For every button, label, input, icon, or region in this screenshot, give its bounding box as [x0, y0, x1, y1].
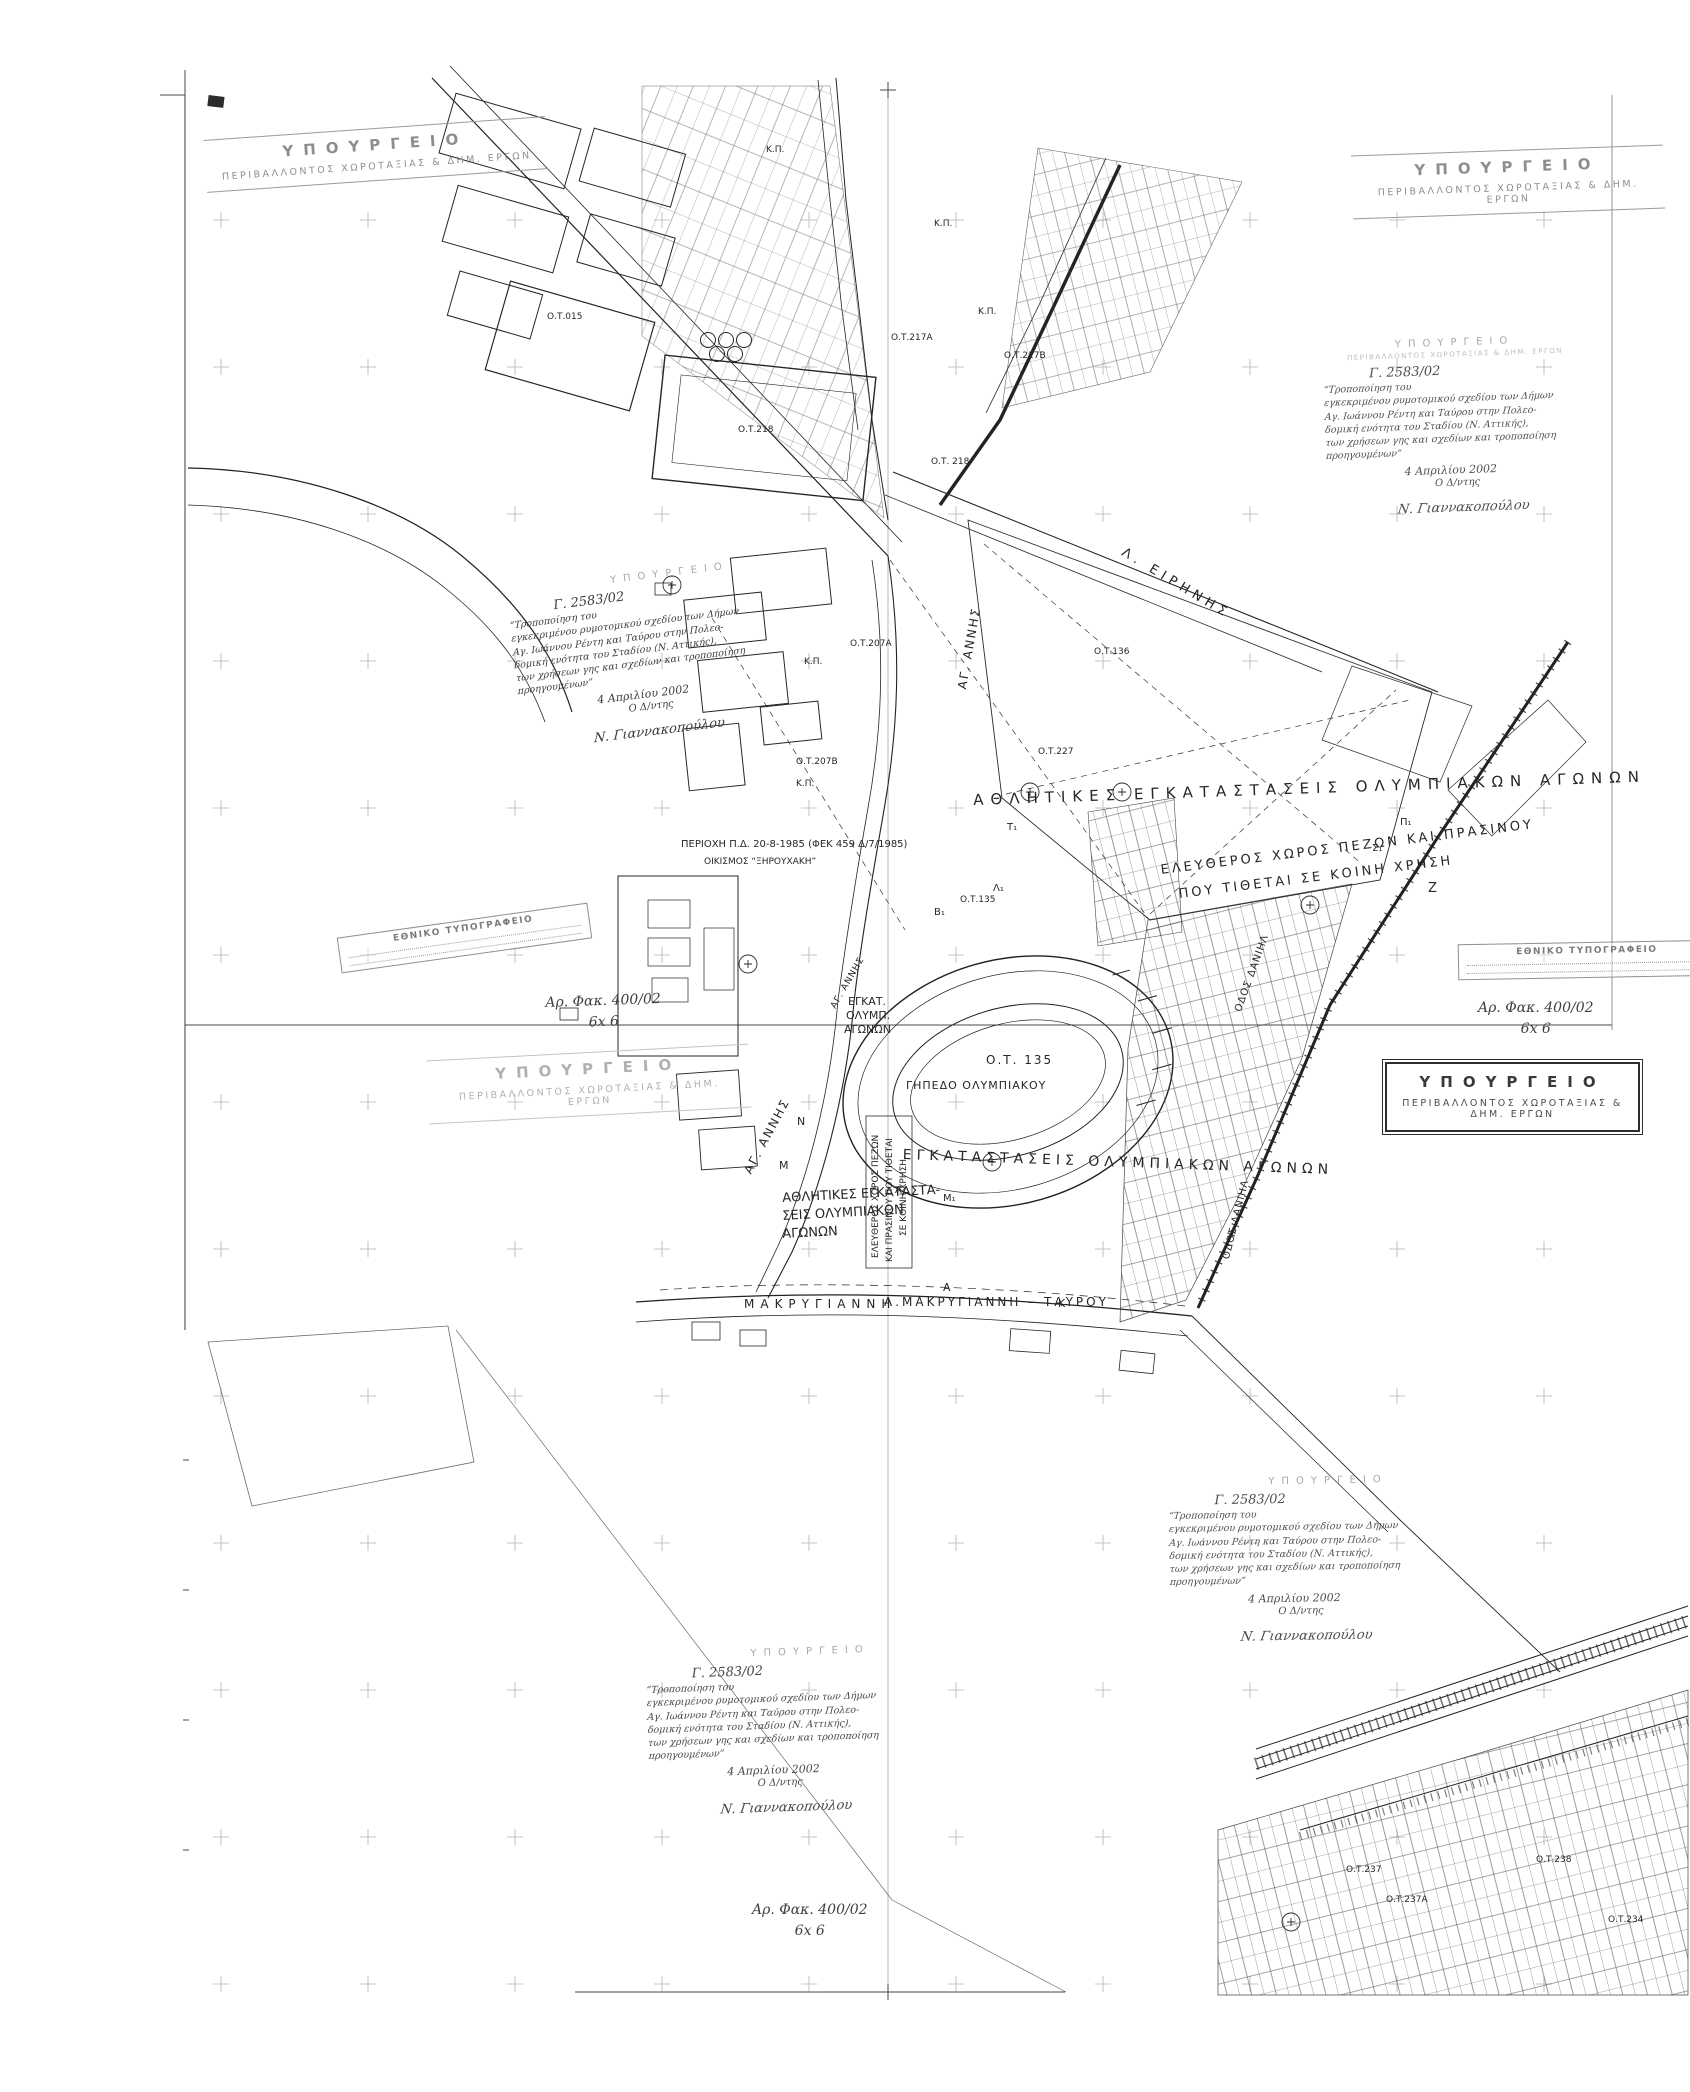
file-number: Αρ. Φακ. 400/02	[545, 989, 661, 1014]
map-label: ΣΕ ΚΟΙΝΗ ΧΡΗΣΗ	[900, 1159, 909, 1236]
illegible-line	[1467, 965, 1690, 974]
ministry-stamp-mid-right: ΥΠΟΥΡΓΕΙΟ ΠΕΡΙΒΑΛΛΟΝΤΟΣ ΧΩΡΟΤΑΞΙΑΣ & ΔΗΜ…	[1385, 1062, 1640, 1132]
map-label: Κ.Π.	[796, 780, 814, 789]
map-label: Ο.Τ.237	[1346, 1866, 1381, 1875]
map-label: ΑΓΩΝΩΝ	[844, 1024, 891, 1035]
approval-note-bottom-center: ΥΠΟΥΡΓΕΙΟ Γ. 2583/02 “Τροποποίηση του εγ…	[645, 1640, 981, 1819]
sheet-ref: 6x 6	[1478, 1019, 1594, 1040]
map-label: Ο.Τ.234	[1608, 1916, 1643, 1925]
map-label: Ο.Τ. 135	[986, 1054, 1053, 1066]
map-label: Λ.ΜΑΚΡΥΓΙΑΝΝΗ – ΤΑΥΡΟΥ	[884, 1296, 1109, 1308]
ministry-stamp-top-right: ΥΠΟΥΡΓΕΙΟ ΠΕΡΙΒΑΛΛΟΝΤΟΣ ΧΩΡΟΤΑΞΙΑΣ & ΔΗΜ…	[1351, 145, 1665, 220]
map-label: Σ₁	[1372, 844, 1382, 854]
map-label: ΕΛΕΥΘΕΡΟΣ ΧΩΡΟΣ ΠΕΖΩΝ	[872, 1135, 881, 1258]
approval-note-upper-right: ΥΠΟΥΡΓΕΙΟ ΠΕΡΙΒΑΛΛΟΝΤΟΣ ΧΩΡΟΤΑΞΙΑΣ & ΔΗΜ…	[1322, 333, 1593, 520]
map-label: ΟΛΥΜΠ.	[846, 1010, 890, 1021]
printing-office-name: ΕΘΝΙΚΟ ΤΥΠΟΓΡΑΦΕΙΟ	[1467, 944, 1690, 958]
map-label: Ο.Τ.237Α	[1386, 1896, 1428, 1905]
ministry-dept: ΠΕΡΙΒΑΛΛΟΝΤΟΣ ΧΩΡΟΤΑΞΙΑΣ & ΔΗΜ. ΕΡΓΩΝ	[1358, 178, 1659, 210]
map-label: Ο.Τ.135	[960, 896, 995, 905]
map-label: ΕΓΚΑΤ.	[848, 996, 886, 1007]
note-signoff: Ο Δ/ντης	[1278, 1602, 1490, 1617]
sheet-ref: 6x 6	[546, 1010, 662, 1035]
map-label: Π₁	[1400, 818, 1412, 828]
map-label: Κ	[1058, 1298, 1065, 1309]
map-label: Ο.Τ.015	[547, 313, 582, 322]
file-number: Αρ. Φακ. 400/02	[1478, 998, 1594, 1019]
sheet-ref: 6x 6	[752, 1921, 868, 1942]
map-label: ΟΙΚΙΣΜΟΣ “ΞΗΡΟΥΧΑΚΗ”	[704, 858, 816, 867]
map-label: Μ	[779, 1160, 789, 1171]
map-label: Κ.Π.	[804, 658, 822, 667]
file-number: Αρ. Φακ. 400/02	[752, 1900, 868, 1921]
map-label: Ο.Τ.207Β	[796, 758, 838, 767]
map-label: ΑΓΩΝΩΝ	[782, 1225, 838, 1241]
map-label: Ο.Τ.136	[1094, 648, 1129, 657]
national-printing-stamp-right: ΕΘΝΙΚΟ ΤΥΠΟΓΡΑΦΕΙΟ	[1458, 940, 1690, 980]
illegible-line	[1467, 957, 1690, 966]
map-label: Ο.Τ.217Β	[1004, 352, 1046, 361]
map-label: ΓΗΠΕΔΟ ΟΛΥΜΠΙΑΚΟΥ	[906, 1080, 1046, 1091]
ministry-name: ΥΠΟΥΡΓΕΙΟ	[1357, 153, 1657, 181]
map-label: Ο.Τ.207Α	[850, 640, 892, 649]
map-label: Α₁	[895, 1186, 906, 1196]
ministry-name: ΥΠΟΥΡΓΕΙΟ	[1395, 1073, 1630, 1091]
map-label: Ο.Τ.218	[738, 426, 773, 435]
map-label: ΠΕΡΙΟΧΗ Π.Δ. 20-8-1985 (ΦΕΚ 459 Δ/7/1985…	[681, 840, 907, 850]
map-label: Β₁	[934, 908, 945, 918]
map-label: Κ.Π.	[978, 308, 996, 317]
map-label: Α	[943, 1282, 951, 1293]
scanned-plan-sheet: ΥΠΟΥΡΓΕΙΟ ΠΕΡΙΒΑΛΛΟΝΤΟΣ ΧΩΡΟΤΑΞΙΑΣ & ΔΗΜ…	[0, 0, 1690, 2092]
map-label: Μ₁	[943, 1194, 956, 1204]
map-label: Τ₁	[1007, 823, 1017, 833]
map-label: Ο.Τ.238	[1536, 1856, 1571, 1865]
file-number-note-bottom: Αρ. Φακ. 400/02 6x 6	[752, 1900, 868, 1942]
file-number-note-right: Αρ. Φακ. 400/02 6x 6	[1478, 998, 1594, 1040]
map-label: Ν	[797, 1116, 805, 1127]
file-number-note-left: Αρ. Φακ. 400/02 6x 6	[545, 989, 662, 1035]
map-label: Κ.Π.	[934, 220, 952, 229]
map-label: Ο.Τ.227	[1038, 748, 1073, 757]
map-label: ΚΑΙ ΠΡΑΣΙΝΟΥ ΠΟΥ ΤΙΘΕΤΑΙ	[886, 1138, 895, 1262]
map-label: Ζ	[1428, 882, 1437, 895]
approval-note-bottom-right: ΥΠΟΥΡΓΕΙΟ Γ. 2583/02 “Τροποποίηση του εγ…	[1168, 1472, 1491, 1645]
ministry-dept: ΠΕΡΙΒΑΛΛΟΝΤΟΣ ΧΩΡΟΤΑΞΙΑΣ & ΔΗΜ. ΕΡΓΩΝ	[1395, 1098, 1630, 1120]
map-label: Ο.Τ. 218	[931, 458, 969, 467]
map-label: ΜΑΚΡΥΓΙΑΝΝΗ	[744, 1298, 896, 1310]
map-label: Λ₁	[993, 884, 1004, 894]
map-label: Ο.Τ.217Α	[891, 334, 933, 343]
map-label: Κ.Π.	[766, 146, 784, 155]
